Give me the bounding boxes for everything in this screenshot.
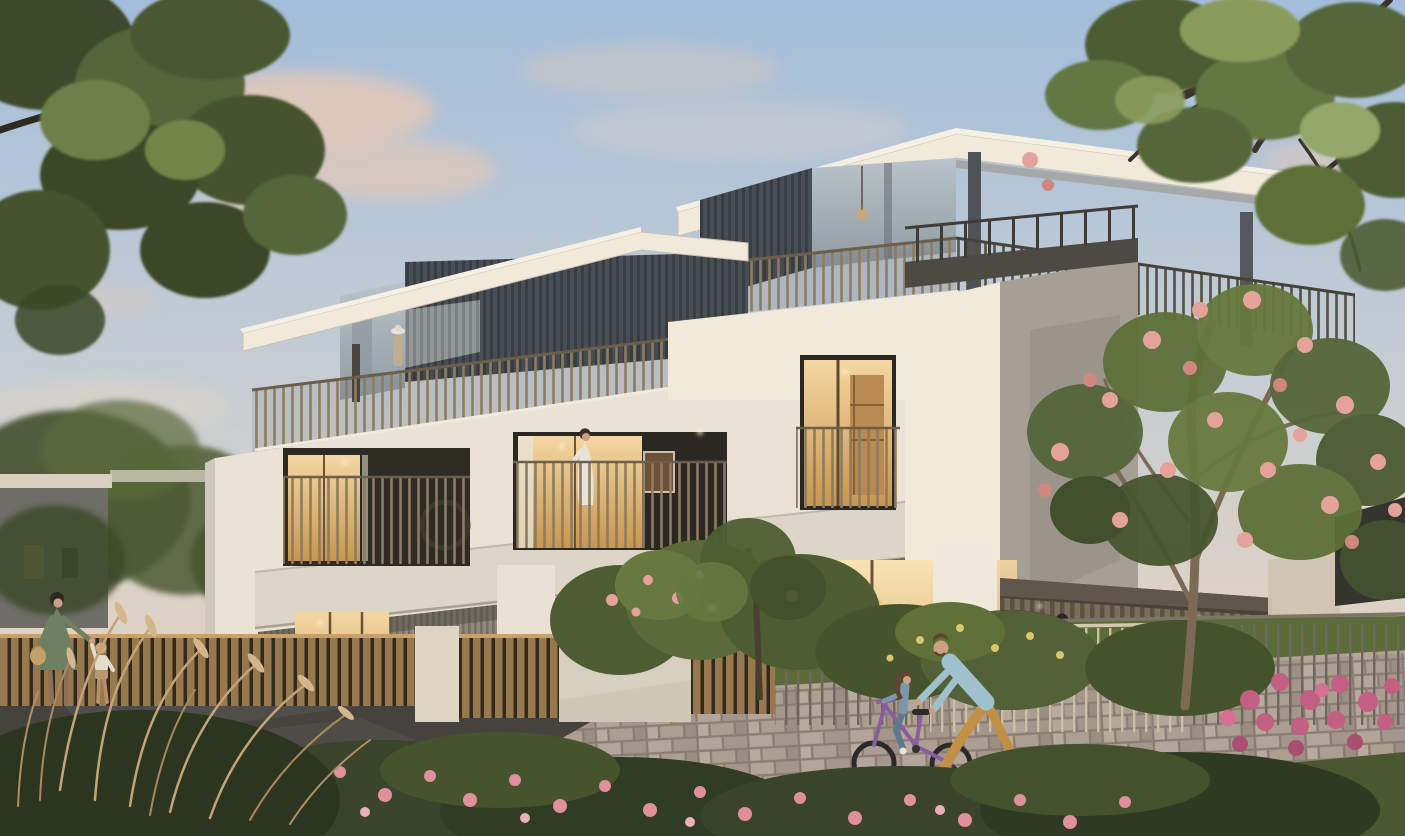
balcony-opening-1: [283, 448, 470, 566]
balcony-railing: [283, 477, 470, 564]
balcony-railing: [796, 428, 900, 508]
juliet-balcony: [796, 355, 900, 510]
balcony-railing: [513, 462, 727, 548]
rendering-canvas: [0, 0, 1405, 836]
roof-person: [391, 325, 405, 366]
gate-pier: [415, 626, 459, 722]
timber-gate: [459, 636, 559, 718]
balcony-opening-2: [513, 428, 727, 550]
